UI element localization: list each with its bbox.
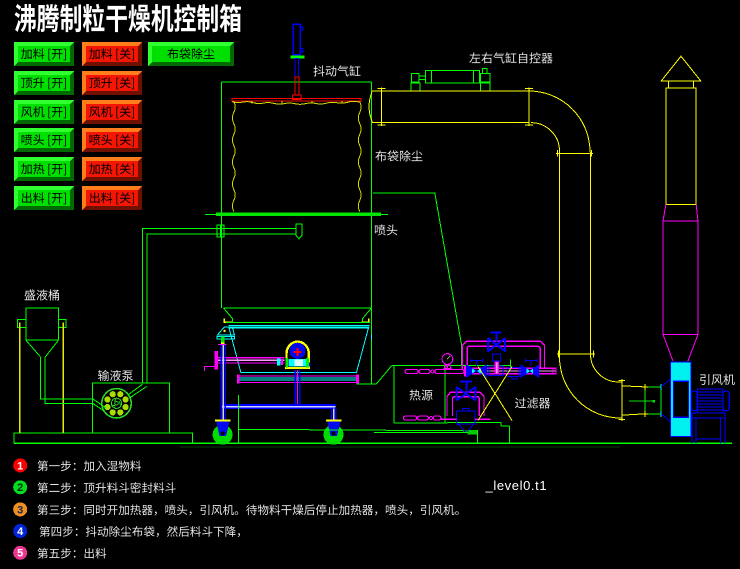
- svg-text:1: 1: [17, 460, 23, 472]
- svg-text:_level0.t1: _level0.t1: [485, 478, 548, 493]
- svg-text:3: 3: [17, 504, 23, 516]
- svg-text:2: 2: [17, 482, 23, 494]
- svg-text:4: 4: [17, 526, 24, 538]
- svg-text:5: 5: [17, 548, 23, 560]
